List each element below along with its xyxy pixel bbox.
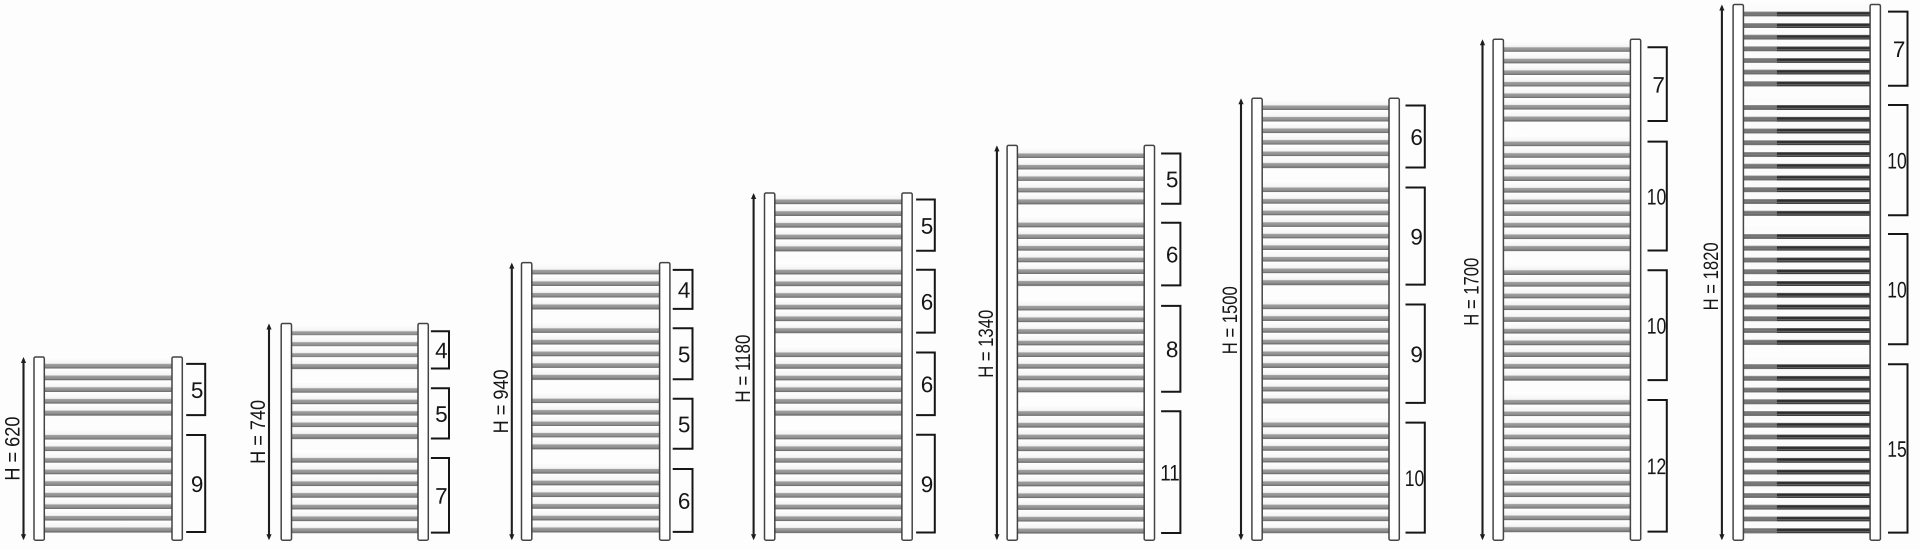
svg-text:7: 7 <box>1652 73 1665 98</box>
svg-text:10: 10 <box>1647 314 1667 339</box>
svg-text:6: 6 <box>921 372 934 397</box>
svg-text:10: 10 <box>1887 277 1907 302</box>
svg-text:5: 5 <box>678 342 691 367</box>
svg-text:10: 10 <box>1647 184 1667 209</box>
svg-text:9: 9 <box>921 472 934 497</box>
svg-text:10: 10 <box>1887 148 1907 173</box>
svg-text:H = 740: H = 740 <box>246 400 270 464</box>
svg-text:5: 5 <box>1166 167 1179 192</box>
svg-text:12: 12 <box>1647 454 1667 479</box>
svg-text:5: 5 <box>678 412 691 437</box>
svg-text:4: 4 <box>678 278 691 303</box>
svg-text:9: 9 <box>1410 224 1423 249</box>
svg-text:H = 1180: H = 1180 <box>731 335 755 403</box>
svg-text:H = 940: H = 940 <box>489 369 513 433</box>
svg-text:6: 6 <box>921 290 934 315</box>
svg-text:5: 5 <box>191 378 204 403</box>
svg-text:H = 1500: H = 1500 <box>1218 286 1242 354</box>
svg-text:11: 11 <box>1160 460 1180 485</box>
svg-text:9: 9 <box>191 472 204 497</box>
svg-text:15: 15 <box>1887 437 1907 462</box>
svg-text:6: 6 <box>678 489 691 514</box>
svg-text:H = 1700: H = 1700 <box>1460 258 1484 326</box>
svg-text:6: 6 <box>1166 242 1179 267</box>
svg-text:H = 1820: H = 1820 <box>1699 242 1723 310</box>
svg-text:9: 9 <box>1410 342 1423 367</box>
svg-text:7: 7 <box>1893 37 1906 62</box>
svg-text:6: 6 <box>1410 125 1423 150</box>
svg-text:8: 8 <box>1166 337 1179 362</box>
svg-text:H = 1340: H = 1340 <box>974 310 998 378</box>
svg-text:5: 5 <box>435 402 448 427</box>
svg-text:5: 5 <box>921 214 934 239</box>
svg-text:7: 7 <box>435 484 448 509</box>
svg-text:4: 4 <box>435 338 448 363</box>
svg-text:H = 620: H = 620 <box>1 417 25 481</box>
svg-text:10: 10 <box>1405 466 1425 491</box>
